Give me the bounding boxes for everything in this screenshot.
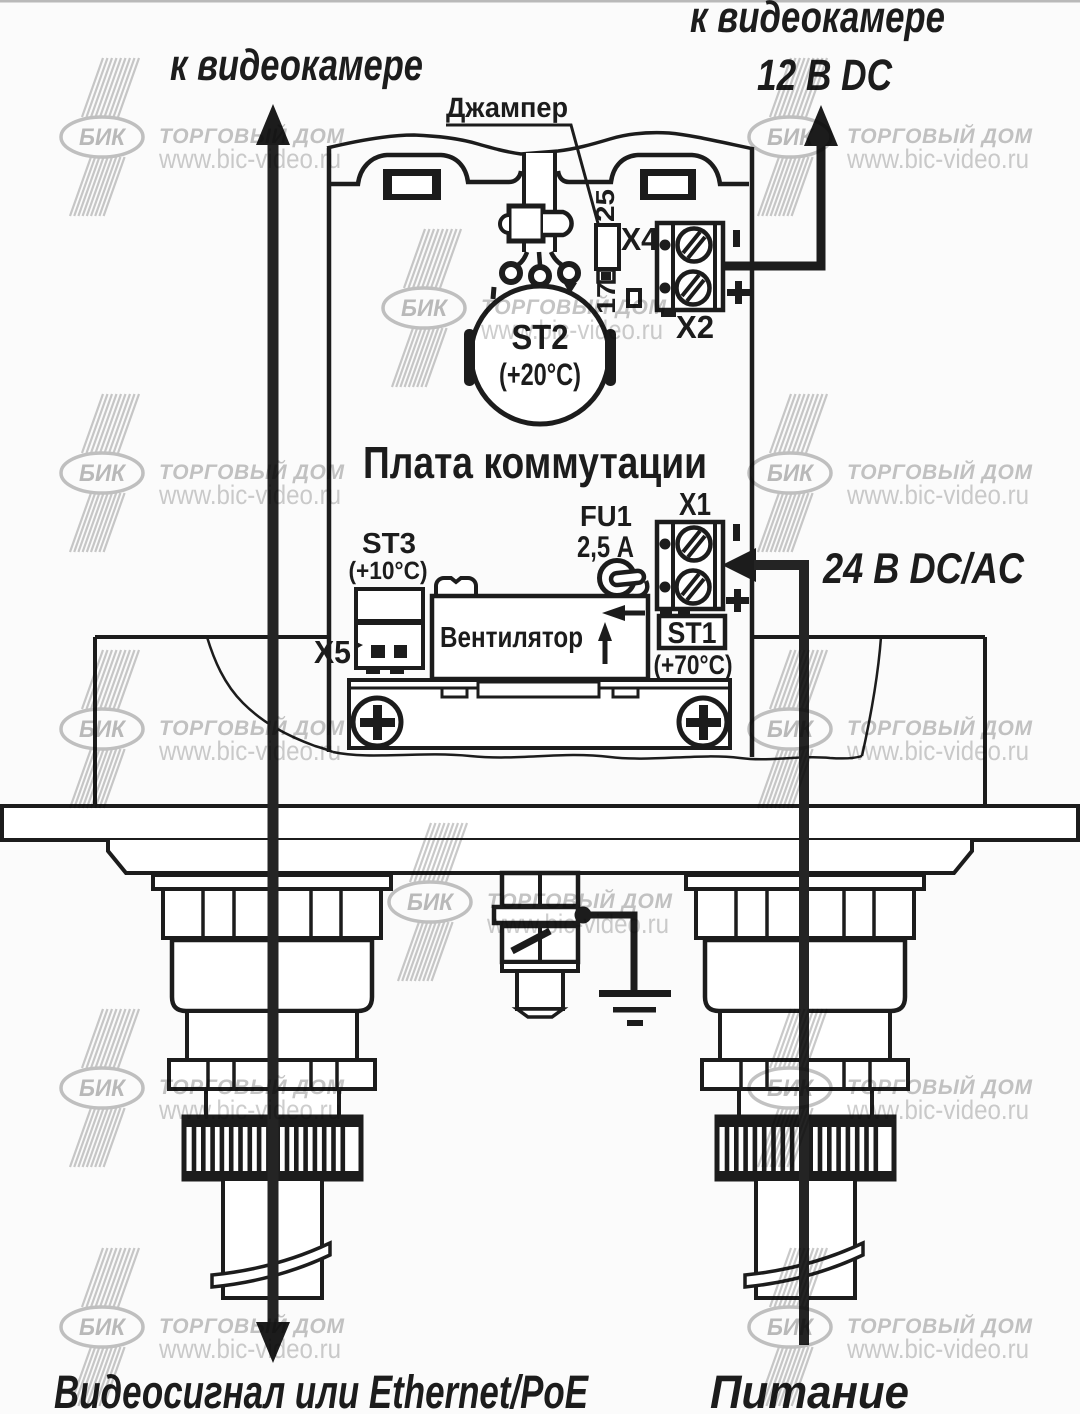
svg-text:к видеокамере: к видеокамере [690,0,945,42]
svg-text:X2: X2 [676,309,714,345]
svg-text:Джампер: Джампер [446,92,568,123]
svg-text:24 В DC/AC: 24 В DC/AC [822,545,1025,593]
svg-text:X4: X4 [621,221,658,257]
svg-text:FU1: FU1 [580,501,632,533]
svg-text:(+70°C): (+70°C) [654,650,733,680]
svg-text:12 В DC: 12 В DC [757,51,893,100]
svg-text:2,5 А: 2,5 А [577,531,634,564]
svg-text:(+10°C): (+10°C) [349,557,428,585]
svg-text:Плата коммутации: Плата коммутации [363,437,707,488]
svg-text:Вентилятор: Вентилятор [440,622,583,654]
svg-text:25: 25 [590,189,620,222]
svg-text:Питание: Питание [710,1365,909,1414]
svg-text:ST3: ST3 [362,528,416,560]
svg-text:Х5: Х5 [314,634,351,670]
svg-text:ST1: ST1 [668,617,717,650]
svg-text:Видеосигнал или Ethernet/PoE: Видеосигнал или Ethernet/PoE [54,1365,589,1414]
svg-text:к видеокамере: к видеокамере [170,41,423,90]
svg-text:X1: X1 [679,486,711,522]
svg-text:(+20°C): (+20°C) [499,357,581,392]
